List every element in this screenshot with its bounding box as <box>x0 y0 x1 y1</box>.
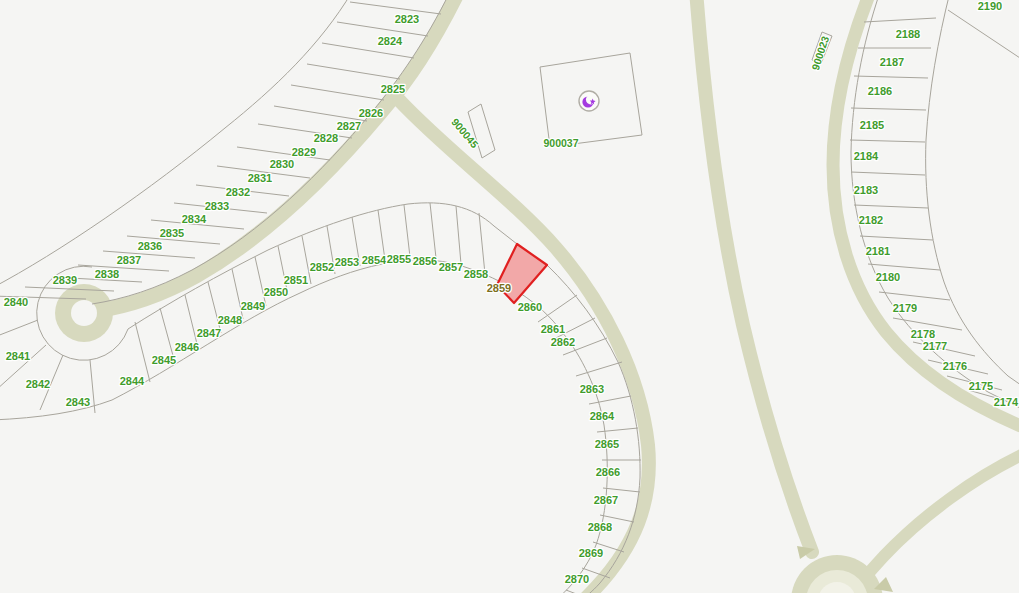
parcel-label-2179: 2179 <box>893 302 917 314</box>
parcel-label-2840: 2840 <box>4 296 28 308</box>
parcel-label-2856: 2856 <box>413 255 437 267</box>
parcel-label-2824: 2824 <box>378 35 403 47</box>
parcel-label-2853: 2853 <box>335 256 359 268</box>
parcel-label-2864: 2864 <box>590 410 615 422</box>
parcel-label-2175: 2175 <box>969 380 993 392</box>
parcel-label-2838: 2838 <box>95 268 119 280</box>
parcel-label-2851: 2851 <box>284 274 308 286</box>
parcel-label-2859: 2859 <box>487 282 511 294</box>
parcel-label-2178: 2178 <box>911 328 935 340</box>
parcel-label-2183: 2183 <box>854 184 878 196</box>
parcel-label-2846: 2846 <box>175 341 199 353</box>
crescent-cut <box>586 95 596 105</box>
map-canvas[interactable]: 2823282428252826282728282829283028312832… <box>0 0 1019 593</box>
parcel-label-2849: 2849 <box>241 300 265 312</box>
parcel-label-2180: 2180 <box>876 271 900 283</box>
parcel-label-2854: 2854 <box>362 254 387 266</box>
parcel-label-2842: 2842 <box>26 378 50 390</box>
parcel-label-2843: 2843 <box>66 396 90 408</box>
parcel-map[interactable]: 2823282428252826282728282829283028312832… <box>0 0 1019 593</box>
parcel-label-2862: 2862 <box>551 336 575 348</box>
parcel-label-2825: 2825 <box>381 83 405 95</box>
parcel-label-2177: 2177 <box>923 340 947 352</box>
parcel-label-2861: 2861 <box>541 323 565 335</box>
parcel-label-2827: 2827 <box>337 120 361 132</box>
parcel-label-2844: 2844 <box>120 375 145 387</box>
parcel-label-2845: 2845 <box>152 354 176 366</box>
parcel-label-2181: 2181 <box>866 245 890 257</box>
parcel-label-2858: 2858 <box>464 268 488 280</box>
parcel-label-2860: 2860 <box>518 301 542 313</box>
parcel-label-2174: 2174 <box>994 396 1019 408</box>
parcel-label-2847: 2847 <box>197 327 221 339</box>
parcel-label-2832: 2832 <box>226 186 250 198</box>
parcel-label-2870: 2870 <box>565 573 589 585</box>
parcel-label-2839: 2839 <box>53 274 77 286</box>
parcel-label-2826: 2826 <box>359 107 383 119</box>
parcel-label-2187: 2187 <box>880 56 904 68</box>
parcel-label-2863: 2863 <box>580 383 604 395</box>
parcel-label-2869: 2869 <box>579 547 603 559</box>
parcel-label-2186: 2186 <box>868 85 892 97</box>
parcel-label-2868: 2868 <box>588 521 612 533</box>
parcel-label-2857: 2857 <box>439 261 463 273</box>
parcel-label-2835: 2835 <box>160 227 184 239</box>
parcel-label-2848: 2848 <box>218 314 242 326</box>
parcel-label-2829: 2829 <box>292 146 316 158</box>
parcel-label-2852: 2852 <box>310 261 334 273</box>
parcel-label-2182: 2182 <box>859 214 883 226</box>
parcel-label-2830: 2830 <box>270 158 294 170</box>
parcel-label-2836: 2836 <box>138 240 162 252</box>
parcel-label-2866: 2866 <box>596 466 620 478</box>
parcel-label-2834: 2834 <box>182 213 207 225</box>
parcel-label-2828: 2828 <box>314 132 338 144</box>
parcel-label-2850: 2850 <box>264 286 288 298</box>
parcel-label-2185: 2185 <box>860 119 884 131</box>
parcel-label-900037: 900037 <box>543 137 578 149</box>
parcel-label-2190: 2190 <box>978 0 1002 12</box>
parcel-label-2837: 2837 <box>117 254 141 266</box>
parcel-label-2867: 2867 <box>594 494 618 506</box>
parcel-label-2841: 2841 <box>6 350 30 362</box>
parcel-label-2823: 2823 <box>395 13 419 25</box>
parcel-label-2855: 2855 <box>387 253 411 265</box>
place-of-worship-icon[interactable] <box>579 91 599 111</box>
parcel-label-2831: 2831 <box>248 172 272 184</box>
parcel-label-2833: 2833 <box>205 200 229 212</box>
parcel-label-2188: 2188 <box>896 28 920 40</box>
parcel-label-2184: 2184 <box>854 150 879 162</box>
parcel-label-2865: 2865 <box>595 438 619 450</box>
parcel-label-2176: 2176 <box>943 360 967 372</box>
